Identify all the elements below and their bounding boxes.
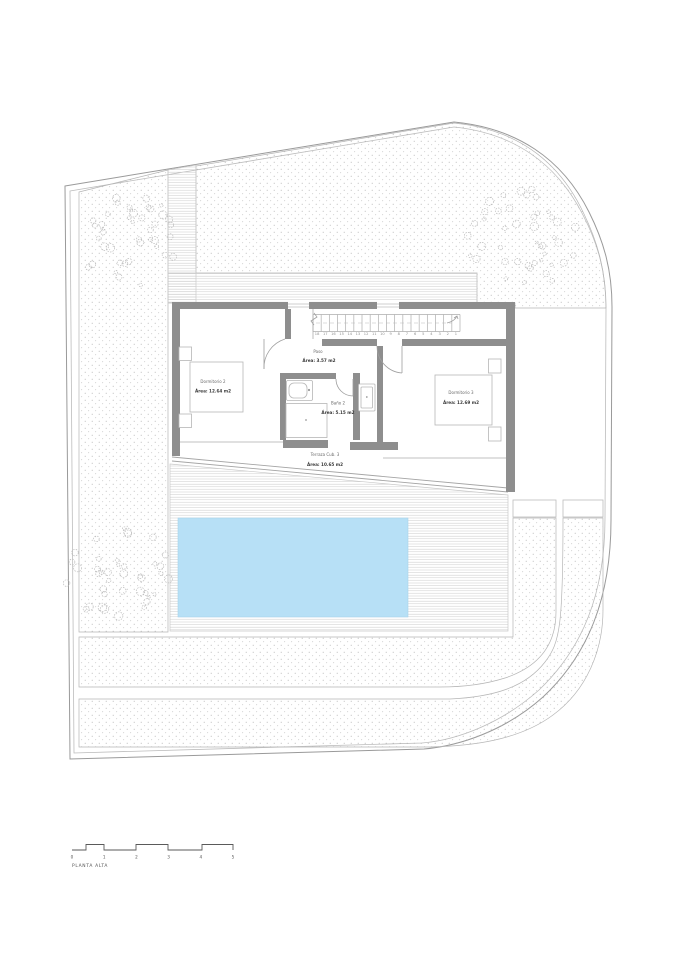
stair-number: 18 [315, 332, 320, 336]
stair-number: 13 [356, 332, 361, 336]
stair-number: 17 [323, 332, 328, 336]
scale-number: 2 [135, 855, 138, 860]
swimming-pool [178, 518, 408, 617]
window-1 [288, 301, 309, 309]
scale-numbers: 012345 [71, 855, 235, 860]
label-terraza-area: Área: 10.65 m2 [307, 462, 343, 467]
stair-number: 4 [430, 332, 433, 336]
wall-top [172, 302, 515, 309]
scale-profile [72, 845, 233, 851]
scale-number: 1 [103, 855, 106, 860]
wall-left [172, 302, 180, 456]
bathtub [287, 381, 313, 401]
bed-dormitorio-2 [190, 362, 243, 412]
planter-box-2 [563, 500, 603, 517]
house: 181716151413121110987654321 [172, 301, 515, 492]
stair-number: 11 [372, 332, 377, 336]
stair-number: 1 [455, 332, 457, 336]
stair-number: 8 [398, 332, 401, 336]
label-paso-name: Paso [313, 349, 323, 354]
label-bano-2-name: Baño 2 [331, 401, 345, 406]
stair-number: 3 [438, 332, 440, 336]
door-dormitorio-2 [264, 339, 285, 369]
stair-arrow [447, 316, 458, 323]
stair-number: 7 [406, 332, 408, 336]
window-2 [377, 301, 399, 309]
label-dormitorio-2-name: Dormitorio 2 [200, 379, 226, 384]
shower [286, 404, 327, 438]
scale-number: 3 [167, 855, 170, 860]
wall-paso-dorm2 [285, 309, 291, 339]
nightstand [489, 359, 502, 373]
scale-number: 0 [71, 855, 74, 860]
scale-number: 5 [232, 855, 235, 860]
plan-title: PLANTA ALTA [72, 863, 108, 869]
stair-numbers: 181716151413121110987654321 [315, 332, 457, 336]
label-dormitorio-2-area: Área: 12.64 m2 [195, 389, 231, 394]
stair-number: 15 [339, 332, 344, 336]
planter-box-1 [513, 500, 556, 517]
label-terraza-name: Terraza Cub. 3 [310, 452, 340, 457]
stair-number: 14 [348, 332, 353, 336]
wall-under-stairs-right [402, 339, 506, 346]
nightstand [489, 427, 502, 441]
wall-bath-north [286, 373, 336, 379]
stair-number: 16 [331, 332, 336, 336]
label-dormitorio-3-area: Área: 12.69 m2 [443, 400, 479, 405]
nightstand [179, 414, 192, 428]
scale-bar: 012345 PLANTA ALTA [71, 845, 235, 870]
nightstand [179, 347, 192, 361]
wall-south-chunk-2 [350, 442, 398, 450]
stair-number: 12 [364, 332, 369, 336]
label-bano-2-area: Área: 5.15 m2 [321, 410, 354, 415]
wall-right [506, 302, 515, 492]
stair-number: 6 [414, 332, 417, 336]
stair-number: 5 [422, 332, 424, 336]
deck-band-top [168, 273, 477, 303]
stair-number: 10 [380, 332, 385, 336]
stair-number: 9 [389, 332, 392, 336]
toilet [359, 384, 376, 411]
staircase: 181716151413121110987654321 [311, 313, 460, 336]
wall-niche-east [377, 346, 383, 442]
wall-under-stairs-left [322, 339, 377, 346]
label-paso-area: Área: 3.57 m2 [302, 358, 335, 363]
wall-south-chunk-1 [283, 440, 328, 448]
door-bano-2 [336, 379, 353, 396]
stair-number: 2 [447, 332, 449, 336]
garden-area-left [79, 170, 168, 632]
floor-plan-drawing: 181716151413121110987654321 [0, 0, 679, 960]
label-dormitorio-3-name: Dormitorio 3 [448, 390, 474, 395]
scale-number: 4 [199, 855, 202, 860]
wall-bath-west [280, 373, 286, 440]
